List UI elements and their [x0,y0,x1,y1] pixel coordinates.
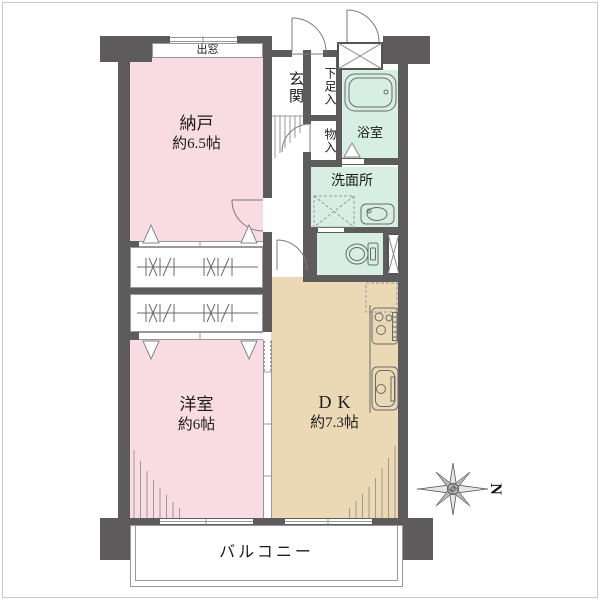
wall-closet-stub-bottom [130,332,139,340]
room-toilet [317,233,383,275]
wall-entrance-top-left [263,50,292,57]
dk-name: DK [271,392,398,413]
meter-box [337,42,383,70]
nando-name: 納戸 [130,114,263,134]
shoe-cabinet-label: 下足入 [311,59,336,114]
washroom-label: 洗面所 [306,174,398,190]
dk-size: 約7.3帖 [271,415,398,432]
balcony-window-west-gap [160,519,253,524]
balcony-label: バルコニー [130,544,403,562]
wall-shoe-closet-divider [311,115,336,121]
wall-top-a [100,36,170,43]
western-room-size: 約6帖 [130,417,263,434]
wall-right [398,62,408,525]
closet-lower-box [130,294,263,332]
nando-size: 約6.5帖 [130,136,263,153]
closet-door-strip-lower [139,332,263,340]
closet-upper-box [130,247,263,288]
floor-plan: N 出窓 納戸 約6.5帖 玄関 下足入 物入 浴室 洗面所 洋室 約6帖 DK… [0,0,600,600]
wall-toilet-bottom [303,275,398,282]
bay-window-label: 出窓 [152,44,263,57]
bathroom-label: 浴室 [342,126,398,141]
western-room-name: 洋室 [130,395,263,415]
nando-door-gap [263,198,272,232]
wall-block-top-right [383,36,430,64]
wall-left [118,36,130,525]
bath-door-gap [342,159,364,164]
hall-closet-label: 物入 [311,122,336,159]
wall-corridor-left [263,36,272,332]
entrance-label: 玄関 [272,60,303,116]
pipe-space-box [387,233,400,275]
closet-door-strip-upper [139,241,263,247]
room-bathroom [342,70,398,158]
bay-window-gap [170,36,237,43]
washroom-door-gap [303,124,311,152]
toilet-door-gap [318,228,344,232]
wall-entrance-top-right [323,50,338,57]
balcony-window-dk-gap [285,519,372,524]
